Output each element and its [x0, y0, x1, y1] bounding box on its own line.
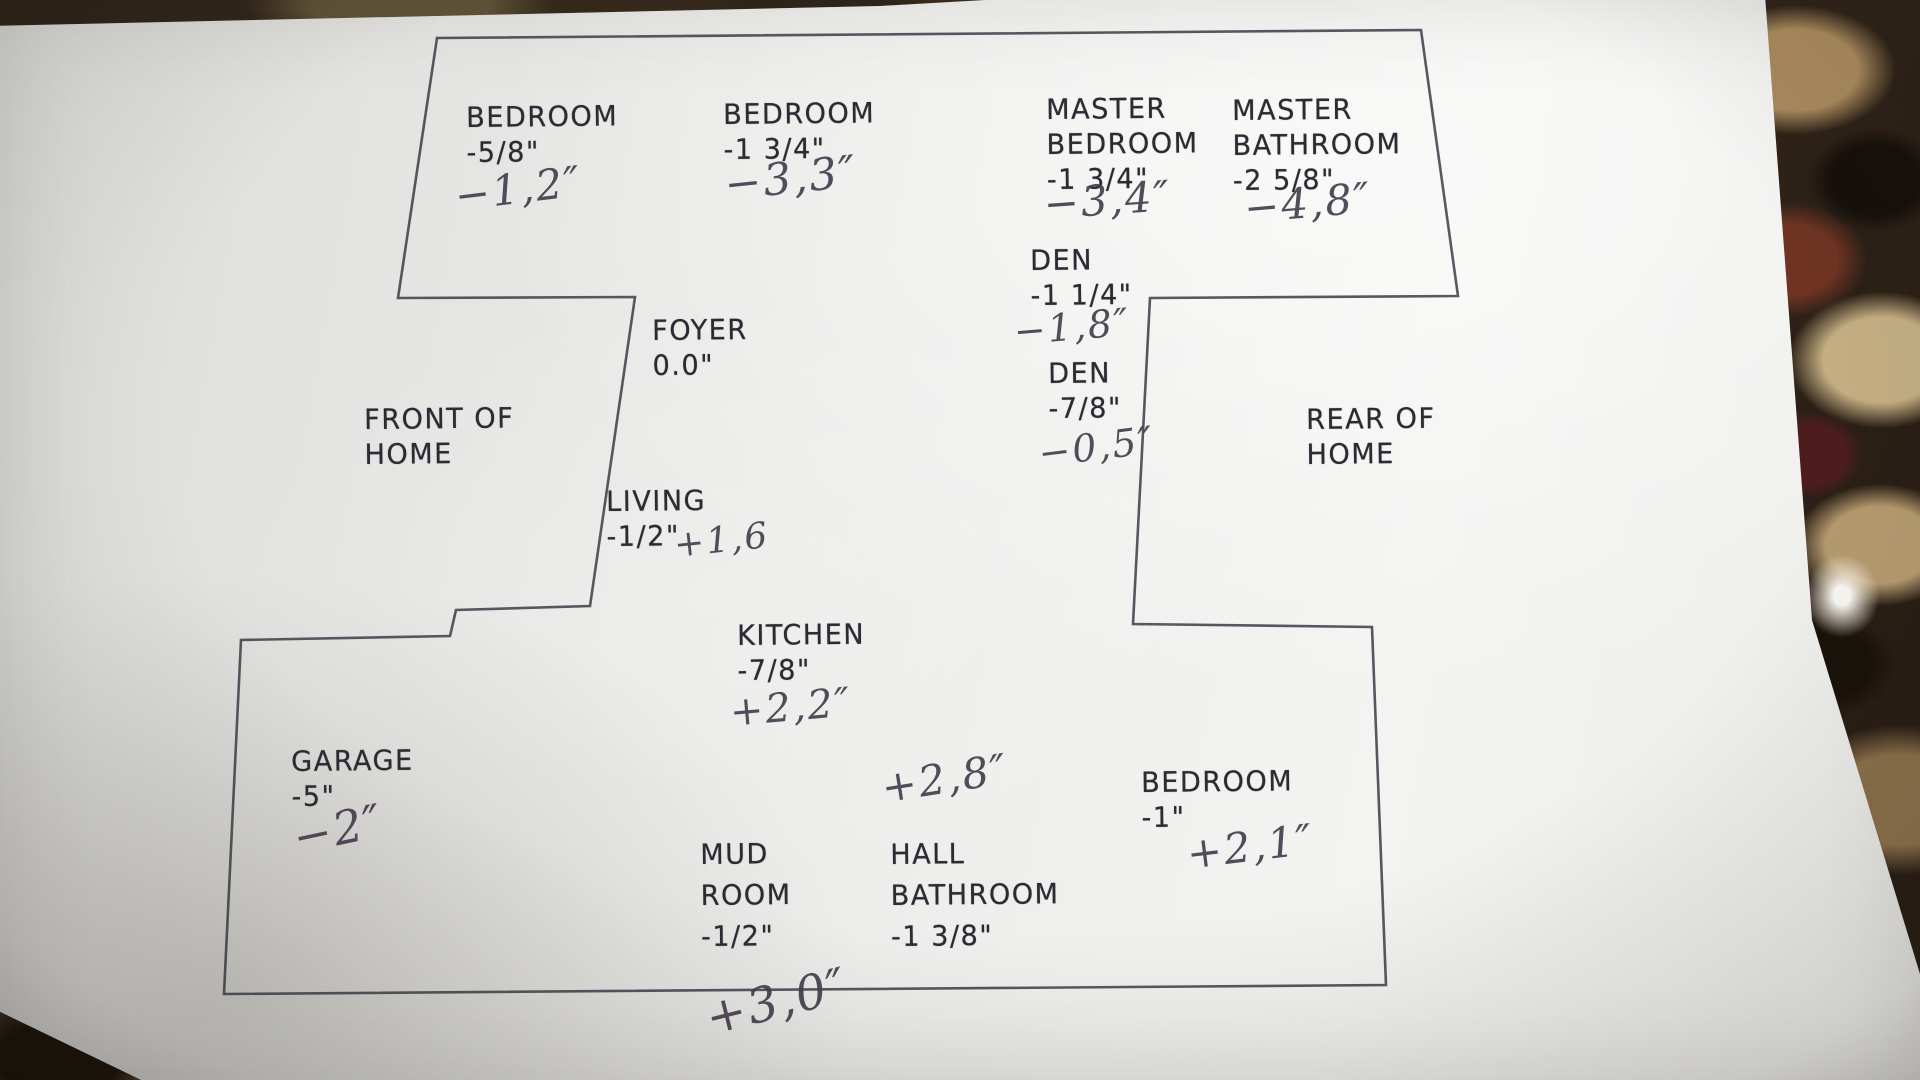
orientation-text: FRONT OF: [364, 400, 514, 437]
room-name: MUD: [700, 833, 791, 875]
room-name: ROOM: [700, 874, 791, 916]
label-front-of-home: FRONT OF HOME: [364, 400, 515, 472]
handwritten-den-lower: −0,5″: [1036, 418, 1157, 476]
room-name: MASTER: [1046, 90, 1198, 127]
handwritten-den-upper: −1,8″: [1012, 300, 1132, 354]
room-measurement-printed: 0.0": [652, 347, 748, 383]
room-label-kitchen: KITCHEN -7/8": [737, 617, 866, 688]
handwritten-kitchen: +2,2″: [728, 679, 854, 735]
room-name: HALL: [890, 832, 1059, 875]
room-measurement-printed: -1/2": [701, 915, 792, 957]
room-name: DEN: [1048, 355, 1122, 391]
room-name: KITCHEN: [737, 617, 865, 653]
granite-countertop: { "colors": { "paper": "#efefed", "print…: [0, 0, 1920, 1080]
handwritten-master-bedroom: −3,4″: [1042, 171, 1173, 229]
orientation-text: REAR OF: [1306, 401, 1436, 437]
room-name: BEDROOM: [723, 95, 875, 132]
handwritten-master-bathroom: −4,8″: [1242, 173, 1373, 233]
handwritten-bottom-note: +3,0″: [700, 957, 854, 1046]
orientation-text: HOME: [1306, 436, 1436, 472]
label-rear-of-home: REAR OF HOME: [1306, 401, 1436, 472]
room-name: FOYER: [652, 312, 748, 348]
room-measurement-printed: -7/8": [1048, 390, 1122, 426]
room-label-mud-room: MUD ROOM -1/2": [700, 833, 792, 957]
room-name: LIVING: [606, 483, 706, 519]
orientation-text: HOME: [364, 435, 514, 472]
room-name: BEDROOM: [1046, 125, 1198, 162]
room-label-bedroom-left: BEDROOM -5/8": [466, 98, 619, 170]
room-label-hall-bathroom: HALL BATHROOM -1 3/8": [890, 832, 1060, 957]
room-measurement-printed: -1 3/8": [891, 914, 1060, 957]
handwritten-hall-bathroom: +2,8″: [878, 744, 1012, 812]
room-name: BATHROOM: [1232, 126, 1401, 163]
handwritten-living: +1,6: [672, 515, 771, 566]
floorplan: BEDROOM -5/8" −1,2″ BEDROOM -1 3/4" −3,3…: [0, 0, 1920, 1080]
room-label-foyer: FOYER 0.0": [652, 312, 748, 383]
room-name: BEDROOM: [1141, 763, 1293, 800]
room-label-den-lower: DEN -7/8": [1048, 355, 1122, 426]
room-name: BEDROOM: [466, 98, 618, 135]
room-name: BATHROOM: [890, 873, 1059, 916]
room-name: GARAGE: [291, 743, 414, 779]
room-name: DEN: [1030, 242, 1132, 278]
room-name: MASTER: [1232, 91, 1401, 128]
